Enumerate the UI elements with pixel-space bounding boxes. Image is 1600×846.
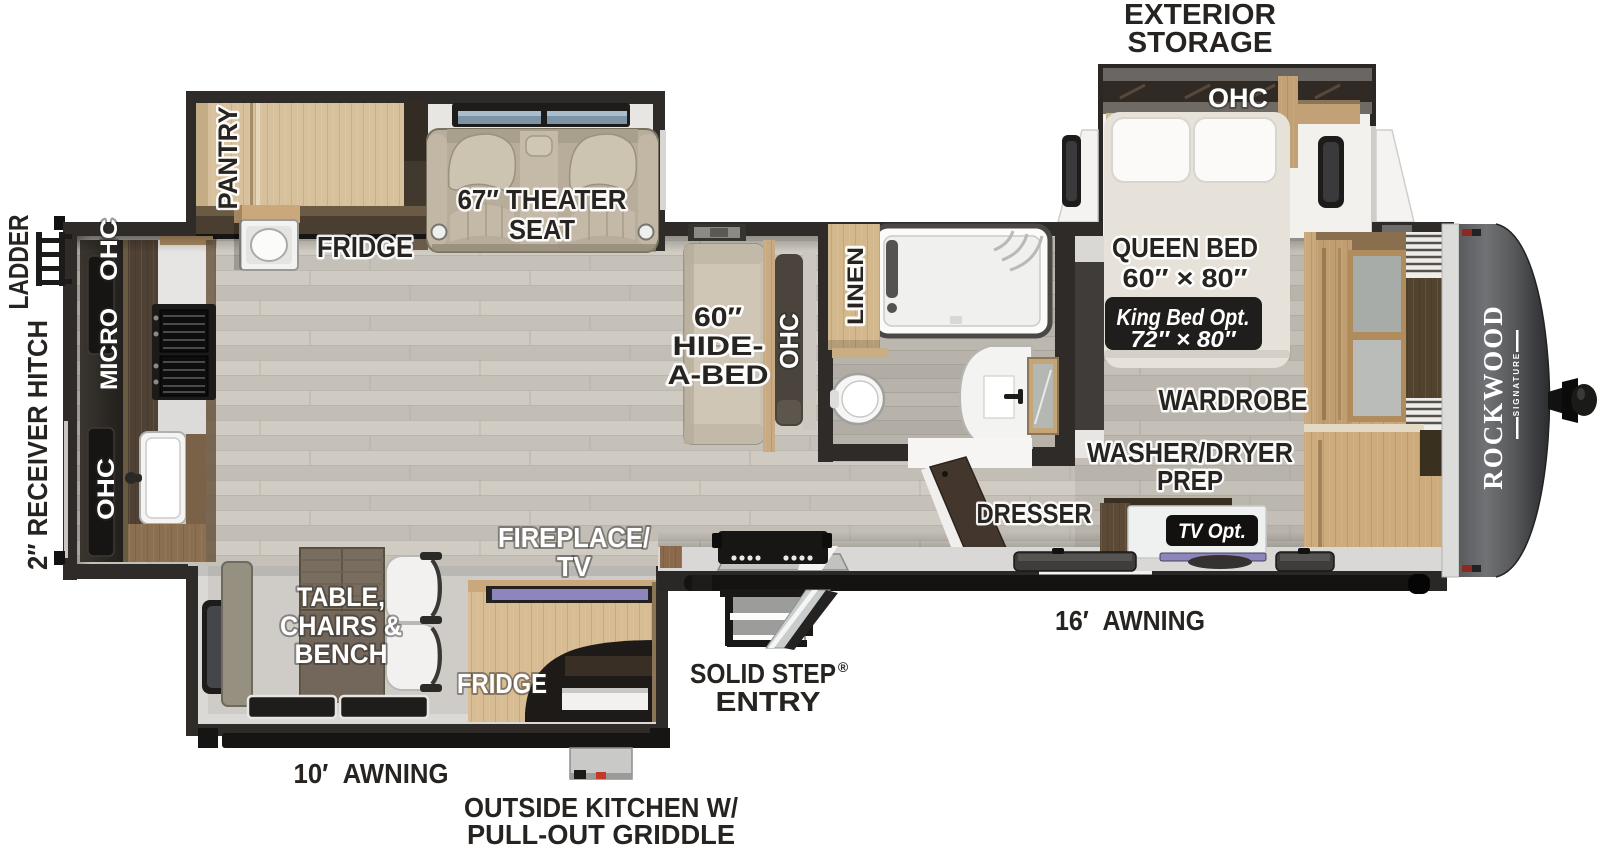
svg-text:QUEEN BED: QUEEN BED [1112,232,1258,263]
svg-text:A-BED: A-BED [668,360,769,390]
svg-text:OHC: OHC [1208,83,1268,113]
svg-text:SOLID STEP: SOLID STEP [690,658,836,689]
svg-text:WARDROBE: WARDROBE [1159,385,1308,417]
svg-text:TV Opt.: TV Opt. [1178,520,1246,543]
svg-text:SIGNATURE: SIGNATURE [1512,352,1521,417]
svg-text:MICRO: MICRO [96,308,123,390]
svg-text:FIREPLACE/: FIREPLACE/ [498,522,650,553]
svg-text:DRESSER: DRESSER [977,498,1092,529]
svg-text:WASHER/DRYER: WASHER/DRYER [1087,437,1293,468]
svg-text:FRIDGE: FRIDGE [317,232,413,264]
svg-text:TABLE,: TABLE, [297,582,385,612]
svg-text:ENTRY: ENTRY [716,686,821,717]
svg-text:FRIDGE: FRIDGE [457,668,547,699]
svg-text:PULL-OUT GRIDDLE: PULL-OUT GRIDDLE [467,819,735,846]
svg-text:10′ AWNING: 10′ AWNING [294,758,449,789]
svg-text:OHC: OHC [93,458,120,520]
svg-text:PREP: PREP [1157,465,1223,496]
svg-text:HIDE-: HIDE- [673,331,764,361]
svg-text:67″ THEATER: 67″ THEATER [458,184,627,215]
svg-text:60″ × 80″: 60″ × 80″ [1123,263,1248,293]
svg-text:OHC: OHC [774,313,804,369]
svg-text:CHAIRS &: CHAIRS & [280,611,402,641]
svg-text:ROCKWOOD: ROCKWOOD [1478,304,1508,490]
svg-text:16′ AWNING: 16′ AWNING [1055,605,1205,636]
svg-text:OHC: OHC [96,219,123,281]
svg-text:TV: TV [557,551,591,582]
svg-text:2″ RECEIVER HITCH: 2″ RECEIVER HITCH [22,320,53,570]
svg-text:LINEN: LINEN [843,247,868,325]
svg-text:STORAGE: STORAGE [1128,27,1273,59]
svg-text:SEAT: SEAT [509,214,575,245]
svg-text:PANTRY: PANTRY [213,107,243,210]
svg-text:LADDER: LADDER [3,215,34,310]
svg-text:®: ® [838,659,849,675]
svg-text:60″: 60″ [694,302,742,332]
svg-text:72″ × 80″: 72″ × 80″ [1131,326,1237,352]
svg-text:BENCH: BENCH [295,639,388,669]
